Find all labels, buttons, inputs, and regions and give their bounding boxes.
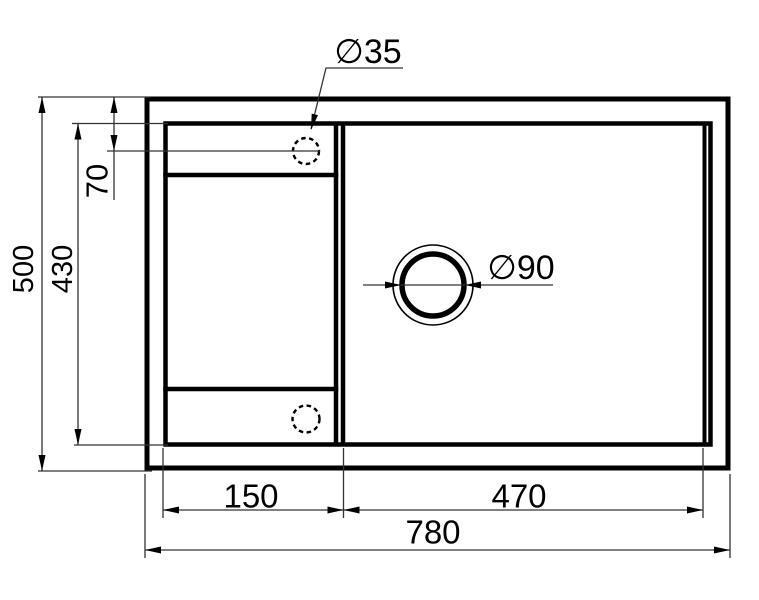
label-overall-width: 780 xyxy=(405,514,460,551)
faucet-hole-bottom-dashed-circle xyxy=(293,406,320,433)
arrow-150-right xyxy=(328,507,344,514)
sink-technical-drawing: 500 430 70 150 470 780 ∅35 ∅90 xyxy=(0,0,759,600)
arrow-470-left xyxy=(344,507,360,514)
label-hole-offset-top: 70 xyxy=(80,164,115,198)
label-main-bowl-width: 470 xyxy=(491,478,546,515)
label-drain-hole-diameter: ∅90 xyxy=(487,249,554,287)
sink-body xyxy=(147,99,728,468)
arrow-500-bottom xyxy=(39,455,46,471)
arrow-780-left xyxy=(145,547,161,554)
label-overall-height: 500 xyxy=(8,245,40,293)
sink-outer-rim xyxy=(147,99,728,468)
arrow-780-right xyxy=(714,547,730,554)
sink-inner-rim xyxy=(166,124,711,445)
arrowheads xyxy=(39,97,731,554)
arrow-70-bottom xyxy=(111,135,118,151)
arrow-500-top xyxy=(39,97,46,113)
label-left-bowl-width: 150 xyxy=(223,478,278,515)
label-inner-height: 430 xyxy=(47,245,79,293)
arrow-430-bottom xyxy=(75,429,82,445)
arrow-150-left xyxy=(163,507,179,514)
dimension-lines xyxy=(38,68,730,558)
arrow-470-right xyxy=(687,507,703,514)
label-faucet-hole-diameter: ∅35 xyxy=(334,33,401,71)
drawing-canvas: 500 430 70 150 470 780 ∅35 ∅90 xyxy=(0,0,759,600)
arrow-70-top xyxy=(111,97,118,113)
arrow-430-top xyxy=(75,124,82,140)
